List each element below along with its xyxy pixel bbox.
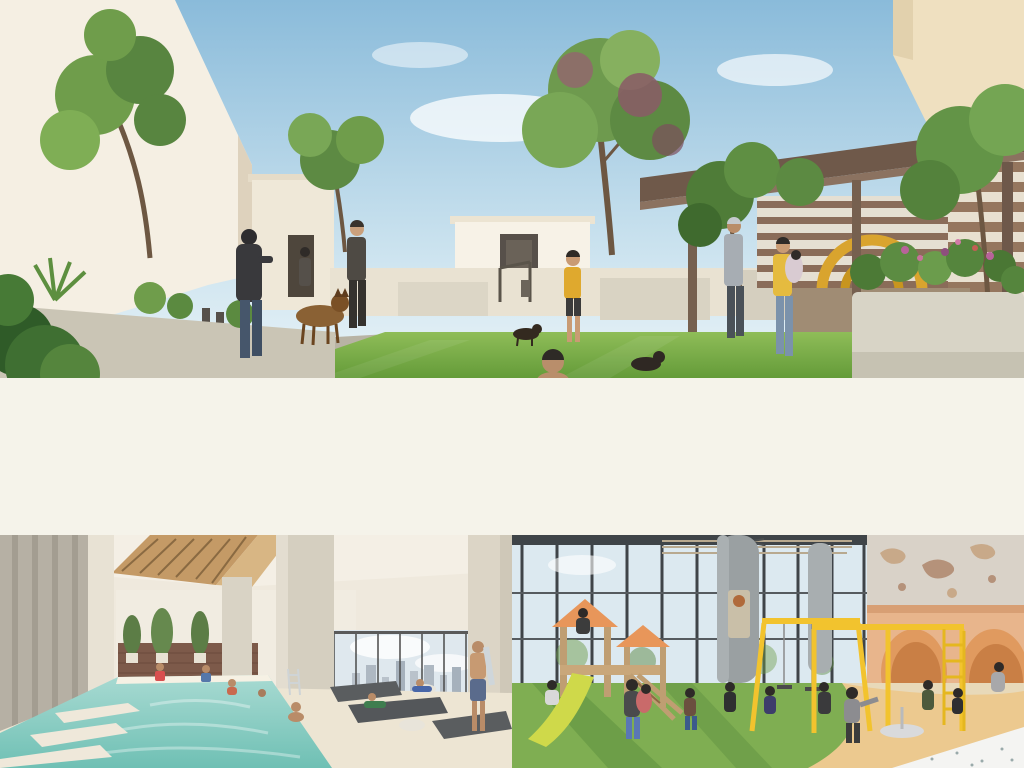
lap-pool-photo — [0, 535, 512, 768]
amenities-band: AMENITIES Amenity Floor (A) Basketball C… — [0, 378, 1024, 535]
playground-photo — [512, 535, 1024, 768]
courtyard-garden-photo — [0, 0, 1024, 378]
amenities-slide: AMENITIES Amenity Floor (A) Basketball C… — [0, 0, 1024, 768]
